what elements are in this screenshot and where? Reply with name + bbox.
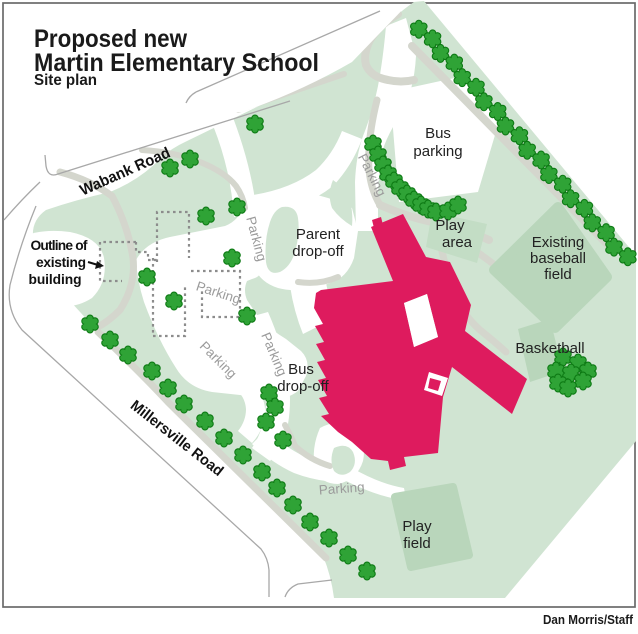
svg-text:Play: Play: [402, 518, 432, 535]
svg-text:area: area: [442, 234, 473, 251]
svg-text:field: field: [544, 266, 572, 283]
svg-text:drop-off: drop-off: [292, 243, 344, 260]
svg-text:baseball: baseball: [530, 250, 586, 267]
svg-text:Dan Morris/Staff: Dan Morris/Staff: [543, 613, 634, 627]
svg-text:field: field: [403, 535, 431, 552]
svg-text:Bus: Bus: [288, 361, 314, 378]
svg-text:parking: parking: [413, 143, 462, 160]
svg-text:Outline of: Outline of: [31, 238, 88, 253]
svg-text:Parking: Parking: [318, 479, 365, 497]
svg-text:existing: existing: [36, 255, 86, 270]
svg-text:drop-off: drop-off: [277, 378, 329, 395]
svg-text:Existing: Existing: [532, 234, 585, 251]
svg-text:Basketball: Basketball: [515, 340, 584, 357]
svg-text:Site plan: Site plan: [34, 72, 97, 89]
svg-text:Play: Play: [435, 217, 465, 234]
svg-text:Parent: Parent: [296, 226, 341, 243]
svg-text:building: building: [29, 272, 82, 287]
svg-text:Bus: Bus: [425, 125, 451, 142]
